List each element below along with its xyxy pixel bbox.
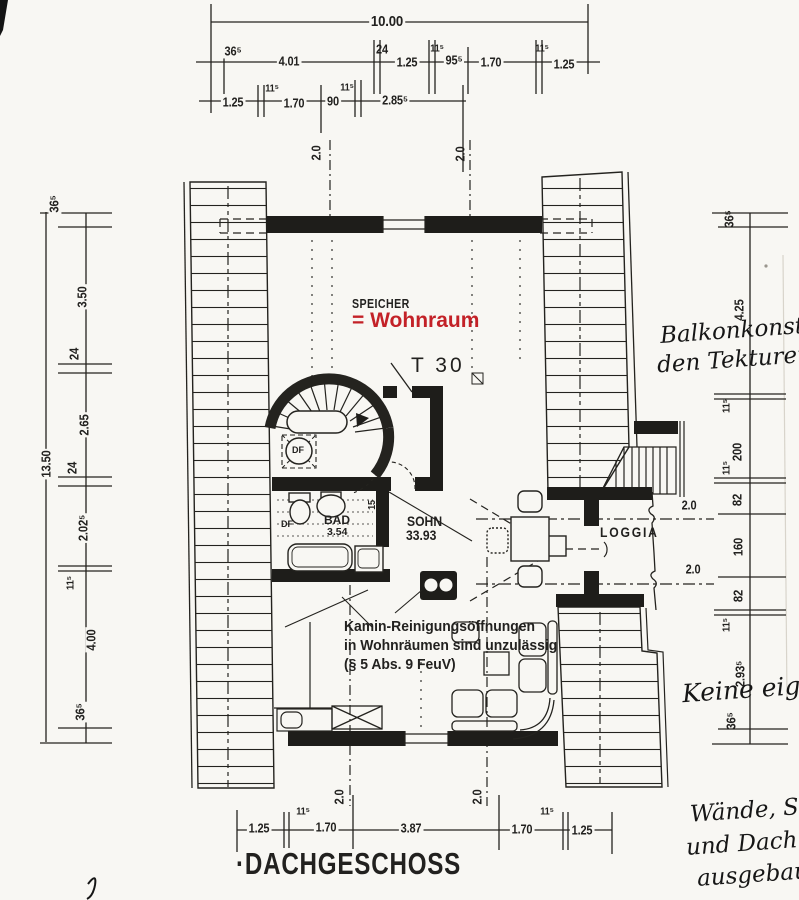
dim-label: 11⁵ [65,576,76,590]
dim-label: 24 [66,462,79,474]
dim-label: 1.25 [552,58,576,71]
chimney-crossed-box [332,706,382,729]
height-line-label: 2.0 [454,146,467,161]
scan-artifacts [0,0,787,899]
dim-label: 3.50 [76,285,89,310]
dining-set [487,491,566,587]
bottom-right-roof-hatch [558,607,668,787]
height-line-label: 2.0 [471,789,484,804]
kamin-annotation: Kamin-Reinigungsöffnungen in Wohnräumen … [344,618,557,675]
dim-label: 1.70 [479,56,503,69]
dim-label: 24 [68,348,81,360]
right-dimension-lines [712,213,788,744]
room-label-loggia: LOGGIA [600,525,659,540]
dim-label: 4.00 [85,628,98,653]
height-line-label: 2.0 [333,789,346,804]
small-marker-symbol [472,373,483,384]
dim-label: 11⁵ [535,43,549,54]
dim-label: 24 [376,43,388,56]
dim-label: 11⁵ [340,82,354,93]
chair [487,528,508,553]
dim-label: 90 [325,95,340,108]
height-line-label: 2.0 [682,499,697,512]
dim-label: 1.25 [221,96,245,109]
dim-label: 36⁵ [74,702,87,723]
dim-label: 11⁵ [540,806,554,817]
window-top [383,216,425,233]
height-line-label: 2.0 [310,145,323,160]
bed [274,622,332,731]
spiral-staircase [270,363,415,493]
dim-label: 82 [732,590,745,602]
window-bottom [405,731,448,746]
room-label-sohn: SOHN [407,514,442,529]
bad-area: 3.54 [327,526,347,538]
chair [518,566,542,587]
dim-left-total: 13.50 [40,449,53,480]
dim-label: 36⁵ [725,712,738,729]
dim-label: 1.70 [510,823,534,836]
door-label-t30: T 30 [411,354,465,378]
plan-title: ·DACHGESCHOSS [236,846,461,882]
chimney-block [420,571,457,600]
wall-thickness-label: 15 [368,500,379,510]
dim-label: 2.02⁵ [77,513,90,543]
cutoff-handwriting-stroke [87,878,95,899]
dim-label: 1.70 [314,821,338,834]
dim-label: 3.87 [399,822,423,835]
speicher-note: = Wohnraum [352,309,479,333]
dim-label: 160 [732,538,745,556]
dim-label: 1.25 [247,822,271,835]
chair [518,491,542,512]
table [511,517,549,561]
loggia-railing [649,492,656,610]
dim-label: 11⁵ [721,399,732,413]
annotation-line-2: in Wohnräumen sind unzulässig [344,637,557,656]
dim-label: 2.65 [78,413,91,438]
dim-label: 4.01 [277,55,301,68]
annotation-line-3: (§ 5 Abs. 9 FeuV) [344,656,557,675]
dim-label: 82 [731,494,744,506]
annotation-line-1: Kamin-Reinigungsöffnungen [344,618,557,637]
dim-label: 11⁵ [296,806,310,817]
dim-label: 200 [731,443,744,461]
floorplan-drawing [0,0,799,900]
dim-top-total: 10.00 [369,14,405,30]
height-line-label: 2.0 [686,563,701,576]
dim-label: 11⁵ [721,461,732,475]
dim-label: 95⁵ [444,54,464,67]
dim-label: 36⁵ [723,210,736,227]
wc-bowl [290,500,310,524]
sohn-area: 33.93 [406,528,436,543]
room-label-bad: BAD [324,513,350,527]
scanned-floorplan-page: 10.00 36⁵ 4.01 24 1.25 11⁵ 95⁵ 1.70 11⁵ … [0,0,799,900]
roof-window-label: DF [292,445,304,455]
dim-label: 1.70 [282,97,306,110]
dim-label: 1.25 [570,824,594,837]
dim-label: 2.85⁵ [380,94,409,107]
dim-label: 11⁵ [721,618,732,632]
side-table [548,536,566,556]
stair-direction-arrow [356,413,369,427]
dim-label: 11⁵ [430,43,444,54]
right-roof-hatch [542,172,637,494]
left-roof-hatch [184,182,274,788]
dim-label: 11⁵ [265,83,279,94]
bad-roof-window-label: DF [281,519,293,529]
dim-label: 36⁵ [48,194,61,215]
dim-label: 36⁵ [223,45,243,58]
dim-label: 1.25 [395,56,419,69]
